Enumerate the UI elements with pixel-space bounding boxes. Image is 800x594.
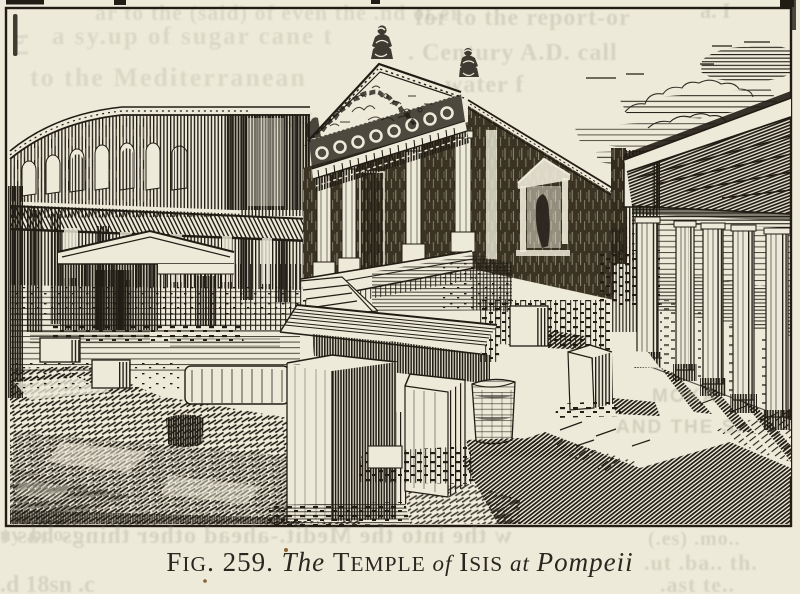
svg-text:ar to the (said) of even the .: ar to the (said) of even the .nd ot.er	[95, 0, 461, 25]
svg-text:MOKA.: MOKA.	[652, 386, 725, 407]
svg-text:to the Mediterranean: to the Mediterranean	[30, 63, 307, 92]
svg-text:.ast te..: .ast te..	[660, 572, 735, 594]
svg-text:a sy.up of sugar cane t: a sy.up of sugar cane t	[52, 23, 334, 50]
svg-text:(.es) .mo..: (.es) .mo..	[648, 528, 741, 550]
svg-text:AND THE S.: AND THE S.	[616, 417, 744, 438]
svg-text:bi.: bi.	[762, 484, 782, 504]
svg-text:.d 18sn .c: .d 18sn .c	[0, 572, 95, 594]
svg-text:uy .buo.: uy .buo.	[0, 524, 68, 546]
svg-text:. Century A.D. call: . Century A.D. call	[408, 40, 618, 66]
svg-text:FIG. 259. The TEMPLE of ISIS: FIG. 259. The TEMPLE of ISIS at Pompeii	[166, 547, 633, 577]
svg-text:b.l: b.l	[9, 34, 31, 56]
svg-text:a. I: a. I	[700, 0, 731, 23]
svg-text:w the into the Medit.-ahead ot: w the into the Medit.-ahead other things…	[0, 523, 512, 549]
